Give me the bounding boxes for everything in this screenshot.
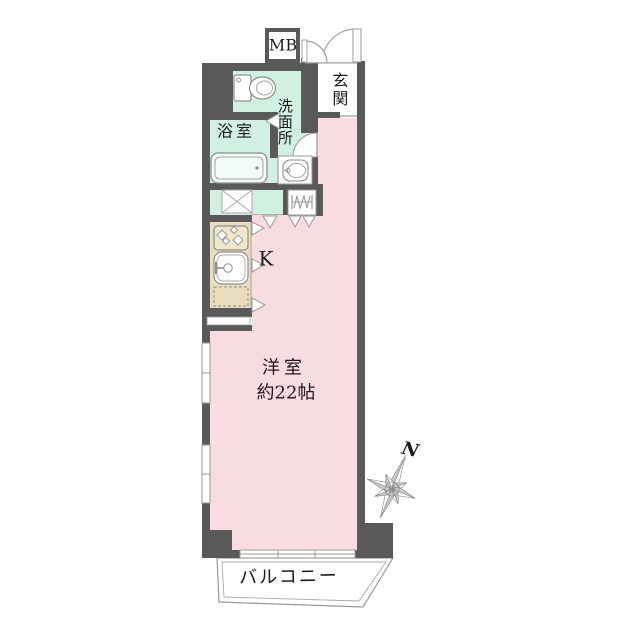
wall — [202, 308, 252, 317]
wall — [316, 184, 323, 216]
stove-icon — [214, 226, 248, 250]
meter-box-label: MB — [269, 38, 297, 55]
door-pocket — [207, 317, 250, 325]
entrance-label: 玄関 — [330, 72, 347, 108]
vanity-sink-icon — [278, 156, 312, 184]
wall — [283, 189, 288, 215]
main-room-size-label: 約22帖 — [257, 385, 316, 404]
kitchen-sink-icon — [214, 252, 248, 284]
wall — [202, 325, 252, 331]
bathtub-icon — [211, 153, 267, 183]
wall — [301, 58, 310, 118]
floor-plan: MB 玄関 洗面所 浴室 K 洋室 約22帖 バルコニー N — [0, 0, 640, 640]
washroom-label: 洗面所 — [276, 98, 292, 146]
wall — [357, 61, 365, 523]
balcony-sliding-window — [240, 550, 355, 558]
wall — [202, 403, 210, 445]
wall — [301, 112, 340, 118]
floor-plan-drawing — [0, 0, 640, 640]
wall — [202, 112, 278, 120]
wall — [202, 215, 252, 222]
toilet-icon — [234, 75, 276, 101]
compass-rose-icon — [355, 446, 428, 528]
main-room-floor — [210, 331, 252, 550]
wall-corner-block — [357, 523, 393, 558]
left-window-upper — [202, 343, 210, 403]
kitchen-label: K — [259, 249, 274, 270]
left-window-lower — [202, 445, 210, 503]
bathroom-label: 浴室 — [217, 124, 255, 141]
wall-shaft-block — [202, 71, 233, 112]
balcony-label: バルコニー — [239, 568, 339, 589]
entrance-door-icon — [302, 29, 361, 63]
wall — [202, 63, 318, 71]
main-room-label: 洋室 — [262, 360, 306, 379]
washer-pan-icon — [222, 190, 252, 213]
hall-floor — [318, 118, 357, 550]
laundry-window-symbol — [288, 190, 316, 215]
